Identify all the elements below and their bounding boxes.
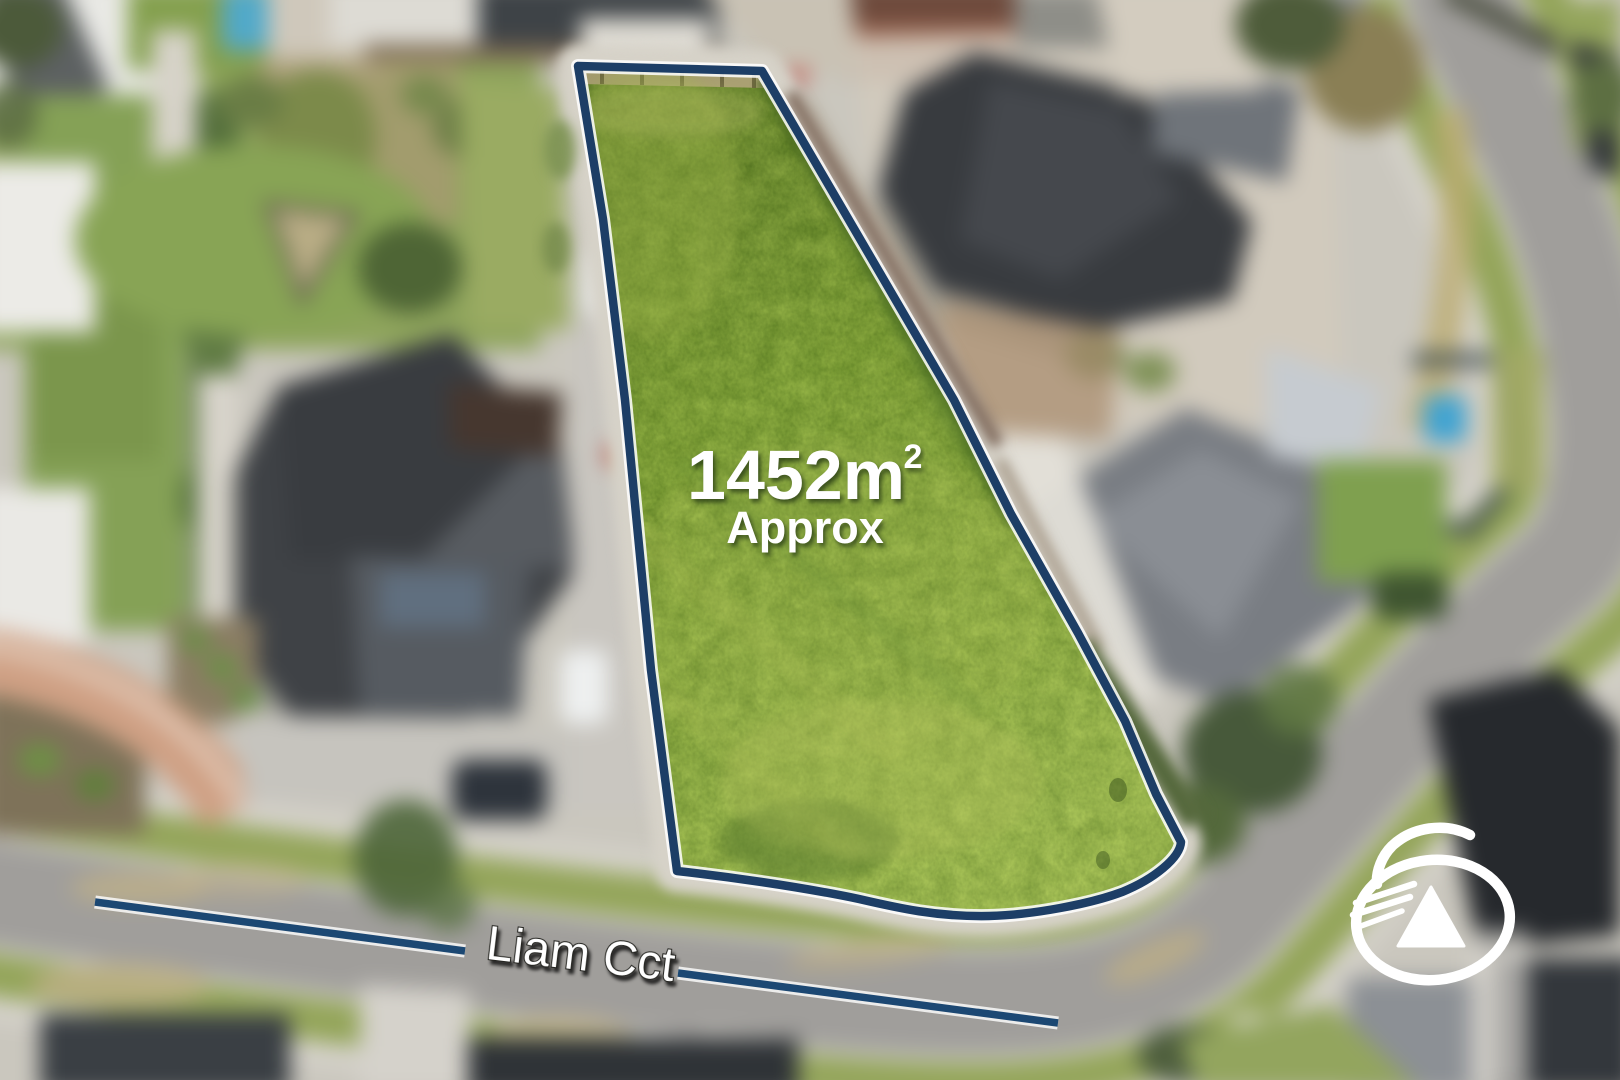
svg-text:2: 2 [904, 438, 923, 476]
svg-text:Approx: Approx [726, 502, 884, 553]
